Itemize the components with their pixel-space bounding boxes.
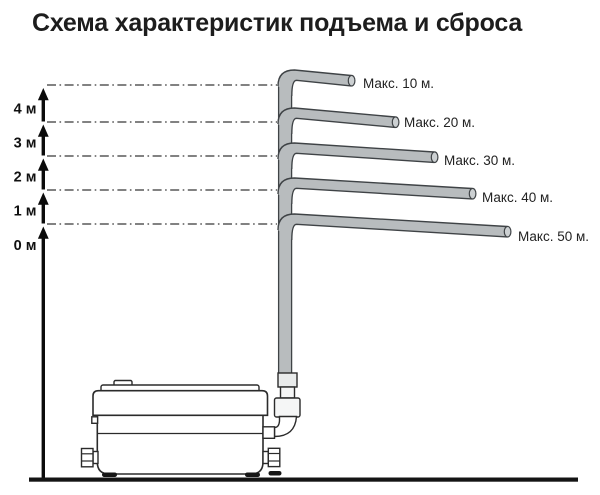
pump-foot — [269, 471, 282, 476]
pump-left-port — [92, 417, 98, 424]
coupling-bottom-segment — [275, 398, 301, 417]
pipe-end-cap — [469, 188, 476, 199]
pipe-end-cap — [392, 117, 399, 128]
discharge-pipe: Макс. 30 м. — [278, 143, 515, 169]
axis-meter-label: 0 м — [14, 238, 37, 254]
axis-arrowhead-icon — [38, 227, 49, 239]
pipe-max-length-label: Макс. 30 м. — [444, 153, 515, 168]
pump — [82, 381, 282, 478]
pipe-max-length-label: Макс. 20 м. — [404, 115, 475, 130]
discharge-pipe: Макс. 10 м. — [278, 70, 434, 96]
axis-arrowhead-icon — [38, 88, 49, 100]
pipe-max-length-label: Макс. 50 м. — [518, 229, 589, 244]
axis-arrowhead-icon — [38, 125, 49, 137]
pipe-end-cap — [431, 152, 438, 163]
pipe-shape — [278, 214, 510, 240]
axis-meter-label: 3 м — [14, 136, 37, 152]
axis-meter-label: 2 м — [14, 170, 37, 186]
axis-meter-label: 4 м — [14, 102, 37, 118]
discharge-pipe: Макс. 20 м. — [278, 108, 475, 134]
axis-meter-label: 1 м — [14, 204, 37, 220]
pump-foot — [245, 473, 260, 478]
discharge-pipe: Макс. 40 м. — [278, 178, 553, 205]
coupling-top-segment — [278, 373, 297, 387]
discharge-pipe: Макс. 50 м. — [278, 214, 589, 244]
pump-body — [97, 415, 263, 474]
axis-arrowhead-icon — [38, 193, 49, 205]
ground-line — [29, 478, 578, 482]
pipe-shape — [278, 70, 354, 96]
left-fitting-stub — [93, 452, 98, 464]
pipe-max-length-label: Макс. 40 м. — [482, 190, 553, 205]
coupling-mid-segment — [281, 387, 295, 398]
right-fitting-stub — [263, 452, 268, 464]
diagram-page: { "title": "Схема характеристик подъема … — [0, 0, 600, 495]
pump-right-fitting — [263, 448, 280, 466]
pump-foot — [102, 473, 117, 478]
pipe-coupling — [275, 373, 301, 417]
pipe-shape — [278, 178, 475, 204]
pipe-elbow — [275, 417, 297, 437]
pump-outlet — [263, 427, 275, 439]
axis-arrowhead-icon — [38, 159, 49, 171]
discharge-pipes: Макс. 10 м.Макс. 20 м.Макс. 30 м.Макс. 4… — [278, 70, 589, 244]
pump-left-fitting — [82, 449, 99, 467]
pipe-end-cap — [504, 226, 511, 237]
right-fitting-flange — [268, 448, 280, 466]
level-lines — [47, 85, 277, 224]
height-axis — [38, 88, 49, 478]
pipe-max-length-label: Макс. 10 м. — [363, 76, 434, 91]
left-fitting-flange — [82, 449, 94, 467]
lift-discharge-diagram: Макс. 10 м.Макс. 20 м.Макс. 30 м.Макс. 4… — [0, 0, 600, 495]
height-axis-labels: 4 м3 м2 м1 м0 м — [14, 102, 37, 255]
pipe-end-cap — [348, 75, 355, 86]
pump-lid — [93, 391, 268, 416]
